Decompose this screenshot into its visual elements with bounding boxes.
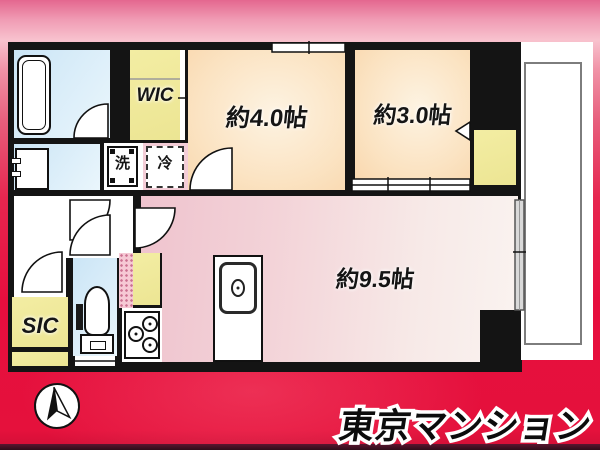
bedroom4-door-arc: [190, 148, 232, 190]
living-label: 約9.5帖: [279, 267, 472, 292]
entry-door-arc: [22, 252, 62, 292]
bedroom3-label: 約3.0帖: [354, 103, 472, 128]
living-door-arc: [135, 208, 175, 248]
plan-annotations: [0, 0, 600, 450]
sink-drain: [232, 280, 244, 296]
brand-logo-text: 東京マンション: [336, 398, 596, 449]
floorplan-flyer: WIC 約4.0帖 約3.0帖 約9.5帖 SIC 洗 冷 東京マンション 東京…: [0, 0, 600, 450]
washer-label: 洗: [107, 156, 138, 173]
bathroom-door-arc: [74, 104, 108, 138]
bedroom4-label: 約4.0帖: [187, 106, 347, 132]
stove-burners: [129, 317, 157, 352]
brand-logo: 東京マンション 東京マンション: [336, 398, 596, 449]
wic-label: WIC: [128, 86, 182, 107]
fridge-label: 冷: [146, 156, 184, 173]
sic-label: SIC: [12, 314, 68, 338]
